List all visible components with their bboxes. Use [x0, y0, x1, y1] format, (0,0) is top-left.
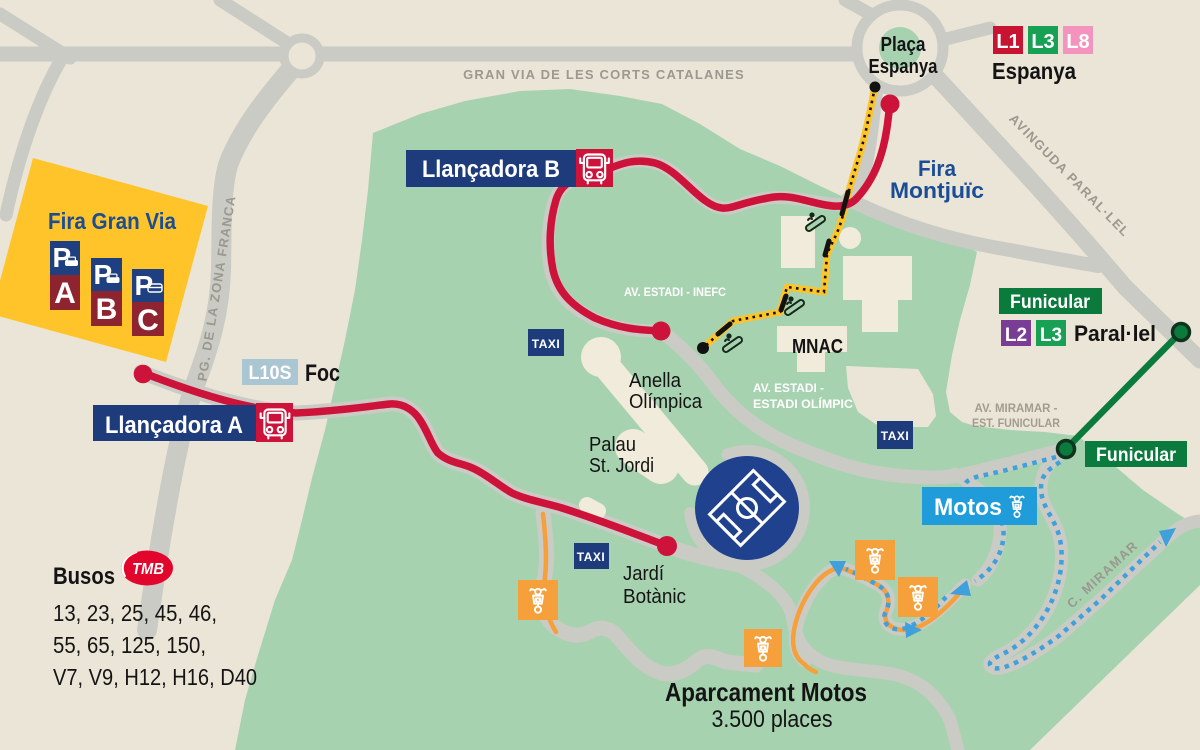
- svg-text:St. Jordi: St. Jordi: [589, 455, 654, 477]
- svg-text:GRAN VIA DE LES CORTS CATALANE: GRAN VIA DE LES CORTS CATALANES: [463, 67, 745, 82]
- svg-text:TAXI: TAXI: [532, 337, 560, 351]
- svg-text:Aparcament Motos: Aparcament Motos: [665, 677, 867, 707]
- svg-text:V7, V9, H12, H16, D40: V7, V9, H12, H16, D40: [53, 664, 257, 690]
- svg-text:Anella: Anella: [629, 370, 682, 392]
- svg-text:Llançadora A: Llançadora A: [105, 412, 243, 439]
- svg-text:AV. ESTADI -: AV. ESTADI -: [753, 381, 824, 395]
- svg-text:Busos: Busos: [53, 563, 115, 590]
- svg-text:MNAC: MNAC: [792, 336, 843, 358]
- svg-text:Funicular: Funicular: [1096, 445, 1177, 466]
- svg-text:Olímpica: Olímpica: [629, 391, 703, 413]
- svg-text:Montjuïc: Montjuïc: [890, 178, 984, 203]
- svg-text:L1: L1: [996, 31, 1019, 53]
- svg-text:55, 65, 125, 150,: 55, 65, 125, 150,: [53, 632, 206, 658]
- svg-text:Plaça: Plaça: [881, 34, 927, 56]
- svg-text:ESTADI OLÍMPIC: ESTADI OLÍMPIC: [753, 396, 853, 411]
- svg-text:Botànic: Botànic: [623, 586, 686, 608]
- svg-text:TAXI: TAXI: [881, 429, 909, 443]
- svg-text:L10S: L10S: [249, 363, 292, 384]
- svg-text:13, 23, 25, 45, 46,: 13, 23, 25, 45, 46,: [53, 600, 217, 626]
- svg-text:Jardí: Jardí: [623, 563, 664, 585]
- svg-text:Motos: Motos: [934, 494, 1002, 521]
- svg-text:Palau: Palau: [589, 434, 636, 456]
- svg-text:EST. FUNICULAR: EST. FUNICULAR: [972, 416, 1060, 430]
- svg-text:C: C: [137, 304, 159, 337]
- svg-text:Funicular: Funicular: [1010, 292, 1091, 313]
- svg-text:L2: L2: [1005, 325, 1027, 346]
- svg-text:AV. MIRAMAR -: AV. MIRAMAR -: [975, 401, 1058, 415]
- svg-text:Paral·lel: Paral·lel: [1074, 321, 1156, 346]
- svg-text:L3: L3: [1040, 325, 1062, 346]
- svg-text:Espanya: Espanya: [992, 58, 1076, 84]
- svg-text:Espanya: Espanya: [869, 56, 939, 78]
- svg-text:A: A: [54, 277, 76, 310]
- svg-text:TAXI: TAXI: [577, 550, 605, 564]
- svg-text:B: B: [96, 293, 118, 326]
- svg-text:L8: L8: [1066, 31, 1089, 53]
- svg-text:TMB: TMB: [132, 561, 164, 578]
- svg-text:Llançadora B: Llançadora B: [422, 156, 560, 183]
- svg-text:Foc: Foc: [305, 360, 340, 387]
- svg-text:3.500 places: 3.500 places: [712, 706, 833, 733]
- svg-text:L3: L3: [1031, 31, 1054, 53]
- svg-text:P: P: [135, 270, 154, 301]
- svg-text:AV. ESTADI - INEFC: AV. ESTADI - INEFC: [624, 285, 726, 299]
- svg-text:Fira Gran Via: Fira Gran Via: [48, 208, 176, 234]
